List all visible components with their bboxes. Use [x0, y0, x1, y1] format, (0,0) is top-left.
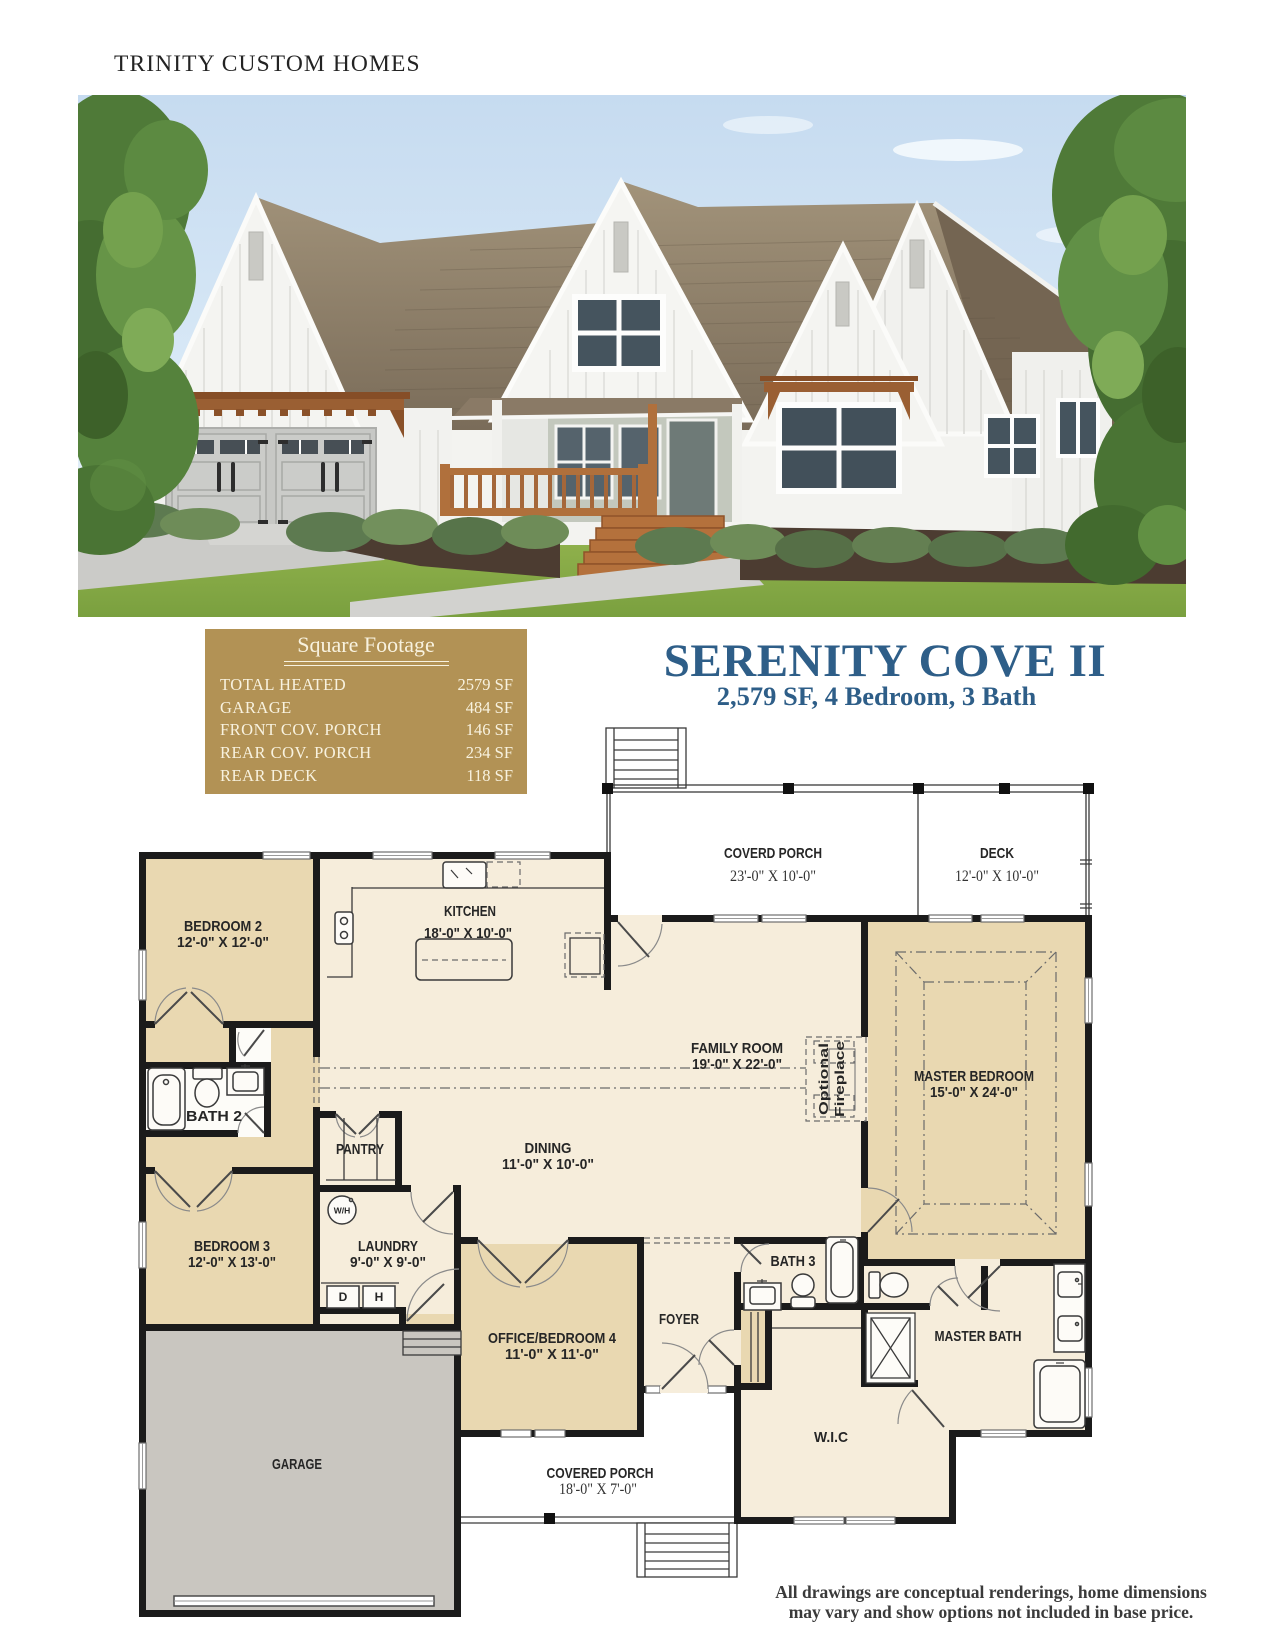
svg-text:FAMILY ROOM: FAMILY ROOM [691, 1040, 783, 1057]
svg-text:Fireplace: Fireplace [832, 1041, 847, 1117]
svg-text:H: H [375, 1290, 384, 1304]
svg-text:Optional: Optional [816, 1043, 831, 1115]
svg-text:12'-0" X 13'-0": 12'-0" X 13'-0" [188, 1255, 276, 1271]
svg-text:15'-0" X 24'-0": 15'-0" X 24'-0" [930, 1085, 1018, 1101]
svg-text:18'-0" X 7'-0": 18'-0" X 7'-0" [559, 1481, 637, 1498]
svg-text:18'-0" X 10'-0": 18'-0" X 10'-0" [424, 926, 512, 942]
svg-text:BEDROOM 2: BEDROOM 2 [184, 918, 262, 935]
svg-text:19'-0" X 22'-0": 19'-0" X 22'-0" [692, 1057, 782, 1073]
svg-text:FOYER: FOYER [659, 1311, 699, 1328]
svg-text:COVERED PORCH: COVERED PORCH [547, 1465, 654, 1482]
svg-text:11'-0" X 10'-0": 11'-0" X 10'-0" [502, 1157, 594, 1173]
svg-text:11'-0" X 11'-0": 11'-0" X 11'-0" [505, 1347, 599, 1363]
svg-text:W/H: W/H [334, 1206, 351, 1216]
svg-text:D: D [339, 1290, 348, 1304]
svg-text:KITCHEN: KITCHEN [444, 903, 496, 920]
svg-text:12'-0" X 10'-0": 12'-0" X 10'-0" [955, 868, 1039, 885]
svg-text:W.I.C: W.I.C [814, 1429, 848, 1446]
svg-text:DECK: DECK [980, 845, 1014, 862]
svg-text:BATH 3: BATH 3 [771, 1253, 816, 1270]
svg-text:MASTER BATH: MASTER BATH [935, 1328, 1022, 1345]
svg-text:PANTRY: PANTRY [336, 1141, 384, 1158]
svg-text:OFFICE/BEDROOM 4: OFFICE/BEDROOM 4 [488, 1330, 617, 1347]
svg-text:9'-0" X 9'-0": 9'-0" X 9'-0" [350, 1255, 426, 1271]
svg-text:COVERD PORCH: COVERD PORCH [724, 845, 822, 862]
svg-text:DINING: DINING [525, 1140, 572, 1157]
svg-text:12'-0" X 12'-0": 12'-0" X 12'-0" [177, 935, 269, 951]
svg-text:LAUNDRY: LAUNDRY [358, 1238, 418, 1255]
svg-text:23'-0" X 10'-0": 23'-0" X 10'-0" [730, 868, 816, 885]
svg-text:MASTER BEDROOM: MASTER BEDROOM [914, 1068, 1034, 1085]
svg-text:GARAGE: GARAGE [272, 1456, 322, 1473]
svg-text:BATH 2: BATH 2 [186, 1108, 242, 1125]
svg-text:BEDROOM 3: BEDROOM 3 [194, 1238, 270, 1255]
